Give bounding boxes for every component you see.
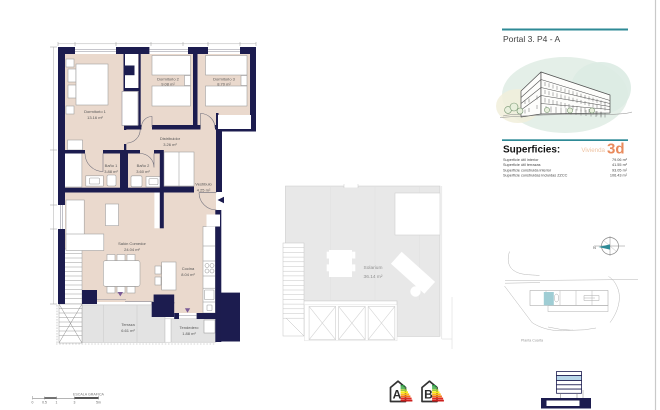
svg-text:Distribuidor: Distribuidor — [160, 136, 181, 141]
svg-text:Dormitorio 1: Dormitorio 1 — [84, 109, 107, 114]
svg-text:A: A — [393, 388, 402, 402]
svg-text:Salón Comedor: Salón Comedor — [118, 241, 146, 246]
svg-text:106.43 m²: 106.43 m² — [610, 174, 628, 178]
svg-text:3.60 m²: 3.60 m² — [136, 169, 150, 174]
svg-text:Superficie construida interior: Superficie construida interior — [503, 168, 552, 172]
svg-text:Baño 1: Baño 1 — [105, 163, 118, 168]
svg-text:9.08 m²: 9.08 m² — [161, 82, 175, 87]
svg-text:0: 0 — [32, 401, 34, 405]
svg-text:Superficie útil interior: Superficie útil interior — [503, 158, 539, 162]
svg-text:Terraza: Terraza — [121, 322, 135, 327]
svg-text:6.61 m²: 6.61 m² — [121, 328, 135, 333]
svg-text:Baño 2: Baño 2 — [137, 163, 150, 168]
svg-text:Superficie útil terrazas: Superficie útil terrazas — [503, 163, 541, 167]
svg-text:Vivienda: Vivienda — [581, 147, 605, 154]
svg-text:Superficie construidas incluid: Superficie construidas incluidas ZZCC — [503, 174, 568, 178]
svg-text:5m: 5m — [96, 401, 101, 405]
svg-text:8.04 m²: 8.04 m² — [181, 272, 195, 277]
svg-text:3.26 m²: 3.26 m² — [163, 142, 177, 147]
svg-text:13.16 m²: 13.16 m² — [87, 115, 103, 120]
svg-text:Solarium: Solarium — [364, 265, 383, 271]
svg-text:Cocina: Cocina — [182, 266, 195, 271]
svg-text:93.05 m²: 93.05 m² — [612, 168, 628, 172]
svg-text:24.04 m²: 24.04 m² — [124, 247, 140, 252]
svg-text:3d: 3d — [607, 141, 625, 158]
svg-text:4.25 m²: 4.25 m² — [197, 188, 211, 193]
svg-text:Vestíbulo: Vestíbulo — [195, 182, 212, 187]
svg-text:0.5: 0.5 — [42, 401, 47, 405]
svg-text:8.70 m²: 8.70 m² — [217, 82, 231, 87]
svg-text:79.06 m²: 79.06 m² — [612, 158, 628, 162]
svg-text:1: 1 — [56, 401, 58, 405]
svg-text:3.88 m²: 3.88 m² — [104, 169, 118, 174]
svg-text:41.55 m²: 41.55 m² — [612, 163, 628, 167]
svg-text:Superficies:: Superficies: — [503, 145, 560, 156]
svg-text:36.14 m²: 36.14 m² — [364, 274, 383, 280]
svg-text:1.88 m²: 1.88 m² — [182, 331, 196, 336]
svg-text:ESCALA GRAFICA: ESCALA GRAFICA — [73, 393, 105, 397]
svg-text:N: N — [593, 245, 596, 250]
svg-text:Tendedero: Tendedero — [180, 325, 200, 330]
svg-text:3: 3 — [74, 401, 76, 405]
svg-text:B: B — [424, 388, 433, 402]
svg-text:Planta Cuarta: Planta Cuarta — [521, 339, 543, 343]
svg-text:Portal 3. P4 - A: Portal 3. P4 - A — [503, 34, 560, 44]
